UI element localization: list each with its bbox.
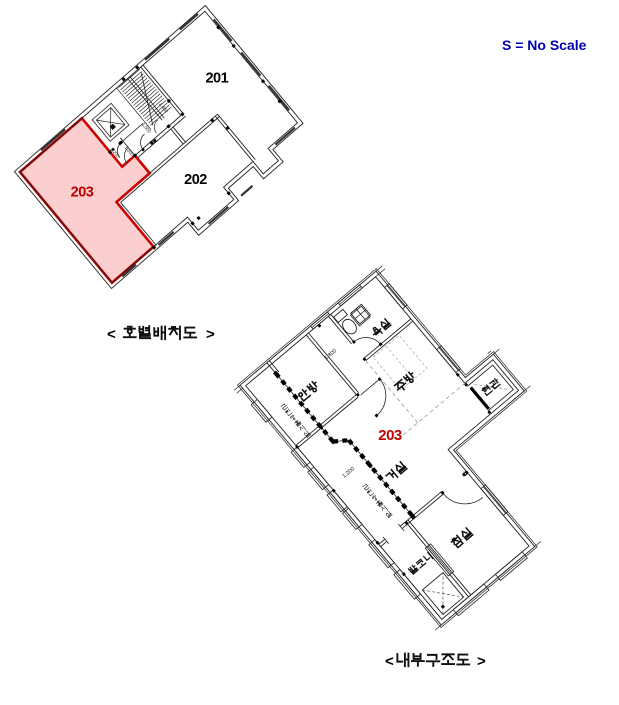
svg-text:>: > <box>206 326 215 343</box>
svg-text:<: < <box>385 653 394 670</box>
svg-text:203: 203 <box>378 427 402 444</box>
svg-text:>: > <box>477 653 486 670</box>
svg-text:202: 202 <box>184 172 207 188</box>
svg-text:S = No Scale: S = No Scale <box>502 37 587 53</box>
svg-text:203: 203 <box>71 185 94 201</box>
svg-text:201: 201 <box>205 71 228 87</box>
svg-text:<: < <box>107 326 116 343</box>
